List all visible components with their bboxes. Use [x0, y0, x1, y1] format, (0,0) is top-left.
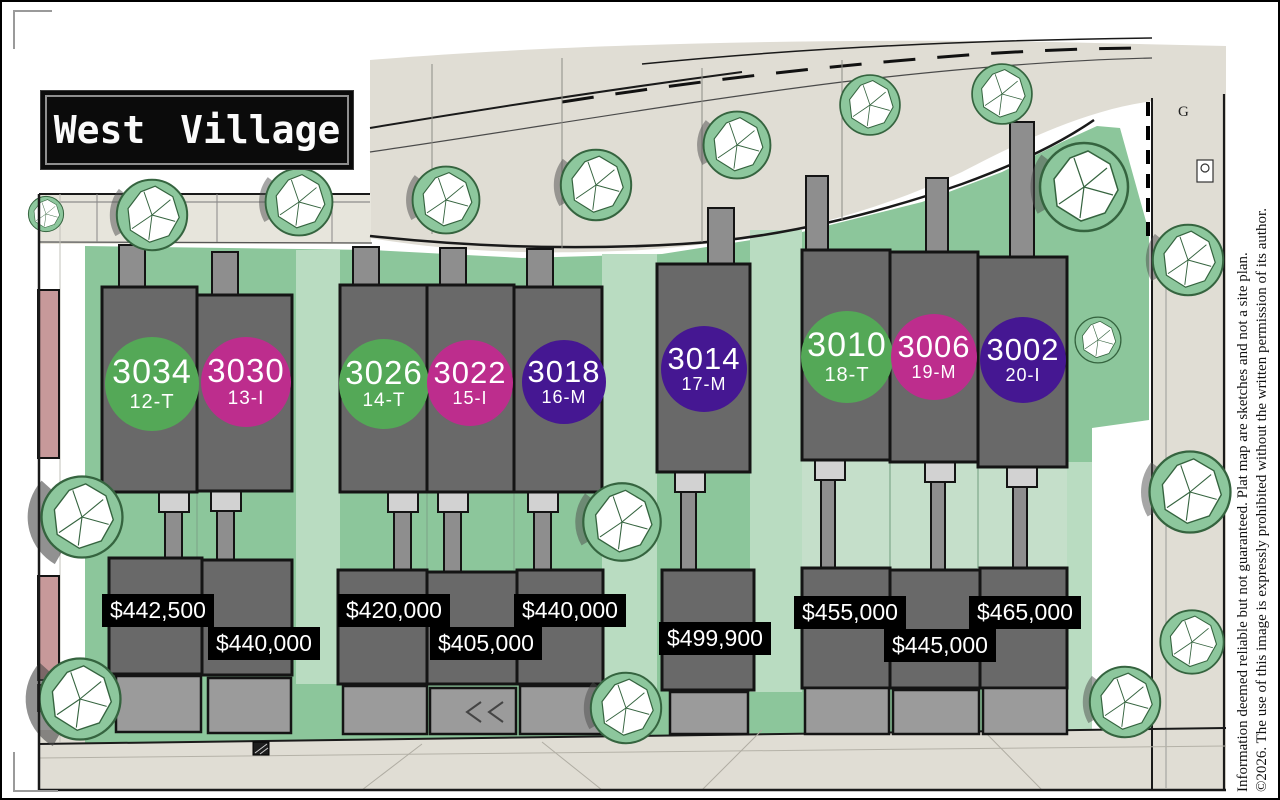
building-3034 — [102, 287, 197, 492]
walkway-3026 — [353, 247, 379, 287]
meter-box — [1197, 160, 1213, 182]
garage-3026 — [338, 570, 427, 684]
driveway-3018 — [534, 512, 551, 570]
garage-3006 — [890, 570, 980, 688]
building-3030 — [197, 295, 292, 491]
parking-pad-3002 — [983, 688, 1067, 734]
tree-icon — [840, 75, 900, 135]
parking-pad-3026 — [343, 686, 427, 734]
walkway-3030 — [212, 252, 238, 297]
driveway-3030 — [217, 511, 234, 560]
building-3022 — [427, 285, 514, 492]
garage-3034 — [109, 558, 202, 674]
entry-steps-3006 — [925, 462, 955, 482]
driveway-3026 — [394, 512, 411, 570]
driveway-3010 — [821, 480, 835, 568]
plat-map-canvas — [2, 2, 1280, 800]
parking-pad-3022 — [430, 688, 516, 734]
plat-map-flyer: West Village G Information deemed reliab… — [0, 0, 1280, 800]
driveway-3022 — [444, 512, 461, 572]
building-3014 — [657, 264, 750, 472]
entry-steps-3018 — [528, 492, 558, 512]
building-3018 — [514, 287, 602, 492]
walkway-3018 — [527, 249, 553, 289]
building-3026 — [340, 285, 427, 492]
tree-icon — [1075, 317, 1121, 363]
parking-pad-3014 — [670, 692, 748, 734]
driveway-3034 — [165, 512, 182, 558]
entry-steps-3026 — [388, 492, 418, 512]
tree-icon — [1160, 610, 1223, 673]
corner-bracket-top-left — [14, 11, 52, 49]
walkway-3022 — [440, 248, 466, 287]
parking-pad-3006 — [893, 690, 979, 734]
right-road — [1152, 90, 1226, 790]
driveway-3014 — [681, 492, 696, 570]
garage-3030 — [202, 560, 292, 675]
tree-icon — [28, 196, 63, 231]
parking-pad-3010 — [805, 688, 889, 734]
walkway-3010 — [806, 176, 828, 252]
parking-pad-3034 — [116, 676, 201, 732]
garage-3002 — [980, 568, 1067, 688]
entry-steps-3010 — [815, 460, 845, 480]
garage-3010 — [802, 568, 890, 688]
garage-3018 — [517, 570, 603, 684]
garage-3014 — [662, 570, 754, 690]
building-3006 — [890, 252, 978, 462]
tree-icon — [1131, 433, 1248, 550]
parking-pad-3030 — [208, 678, 291, 733]
driveway-3002 — [1013, 487, 1027, 568]
entry-steps-3034 — [159, 492, 189, 512]
building-3002 — [978, 257, 1067, 467]
walkway-3002 — [1010, 122, 1034, 259]
walkway-3006 — [926, 178, 948, 254]
walkway-3034 — [119, 245, 145, 289]
driveway-3006 — [931, 482, 945, 570]
tree-icon — [972, 64, 1032, 124]
entry-steps-3014 — [675, 472, 705, 492]
garage-3022 — [427, 572, 517, 684]
entry-steps-3030 — [211, 491, 241, 511]
entry-steps-3022 — [438, 492, 468, 512]
entry-steps-3002 — [1007, 467, 1037, 487]
building-3010 — [802, 250, 890, 460]
walkway-3014 — [708, 208, 734, 266]
